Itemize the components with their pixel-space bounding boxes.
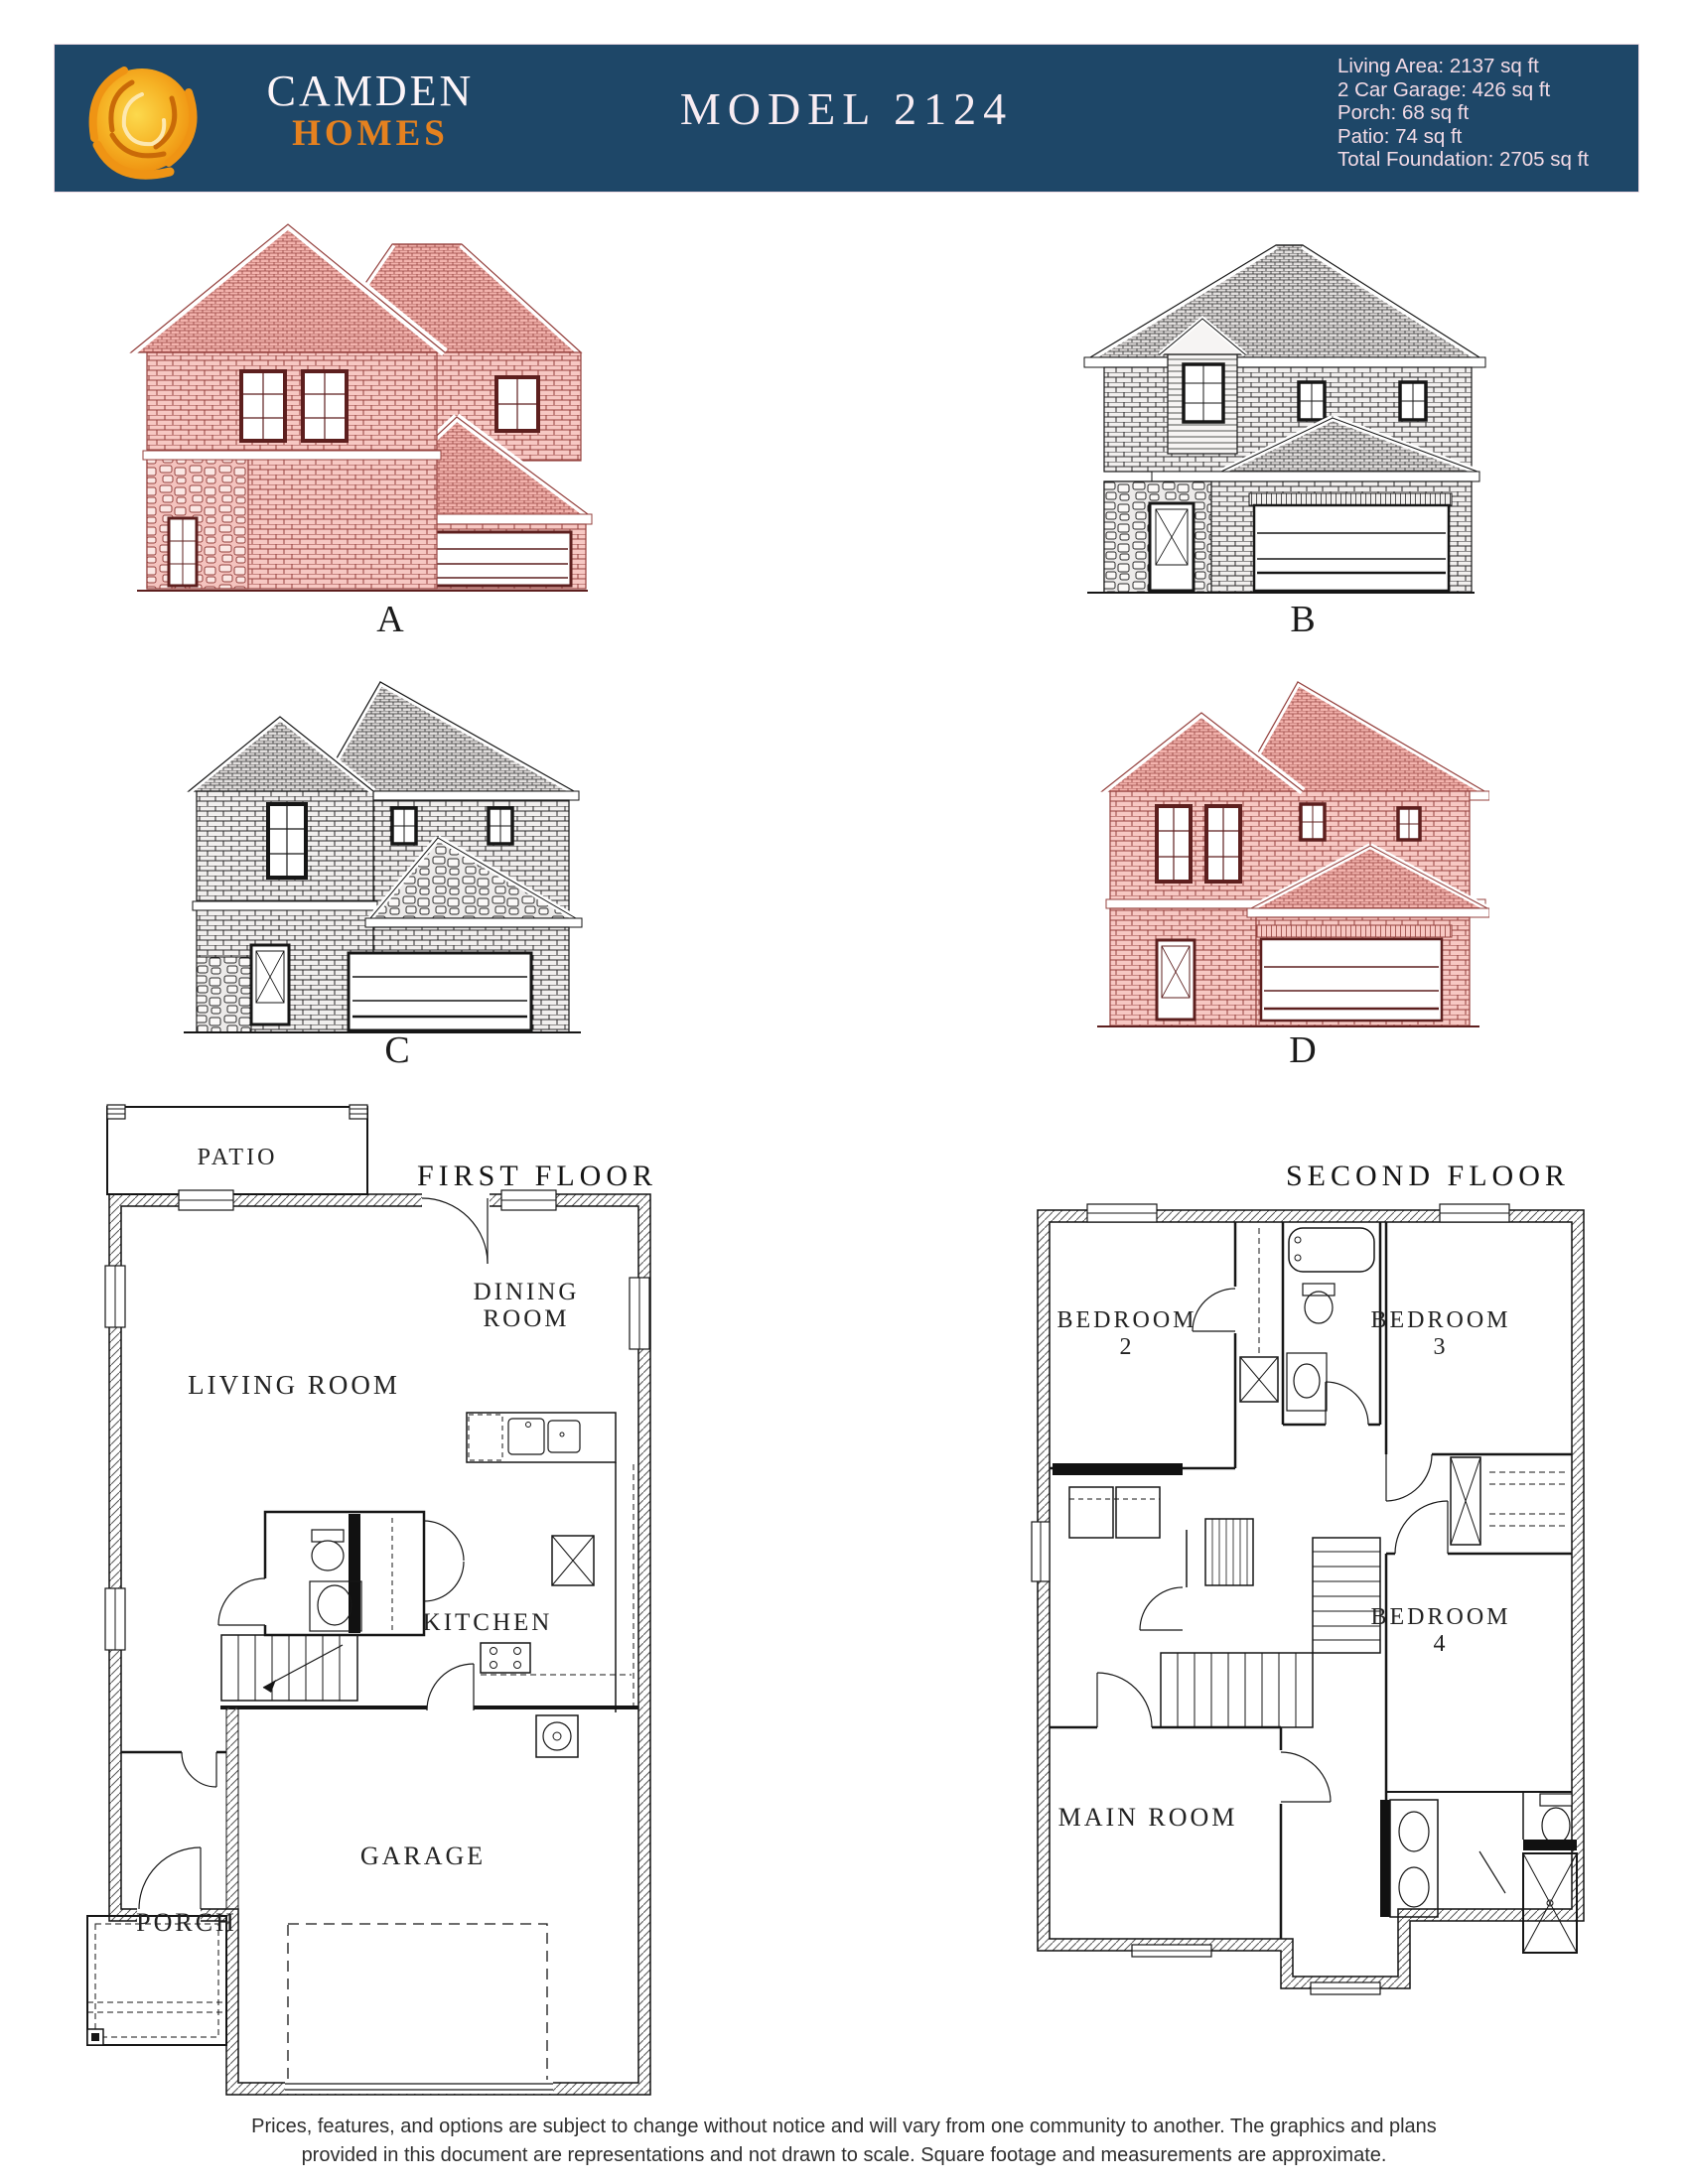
stairs <box>221 1635 357 1701</box>
elevation-c-drawing <box>164 657 601 1044</box>
interior-walls <box>121 1664 638 1909</box>
first-story <box>1104 481 1472 593</box>
toilet-icon <box>1542 1808 1570 1843</box>
washer-icon <box>1069 1487 1113 1538</box>
bedroom3-walls <box>1386 1222 1572 1501</box>
bathtub-icon <box>1289 1228 1374 1272</box>
first-floor-title: FIRST FLOOR <box>417 1160 645 1193</box>
double-vanity <box>1390 1800 1438 1917</box>
range-icon <box>481 1643 530 1673</box>
stat-garage: 2 Car Garage: 426 sq ft <box>1337 78 1675 102</box>
sink-icon <box>1399 1812 1429 1851</box>
garage-wall <box>1256 917 1470 1026</box>
hall-closet <box>1240 1222 1283 1425</box>
elevation-d-drawing <box>1072 657 1489 1044</box>
room-label-bedroom-4: BEDROOM 4 <box>1366 1604 1515 1658</box>
elevation-c-label: C <box>362 1028 432 1072</box>
laundry <box>1069 1487 1160 1538</box>
stat-total-foundation: Total Foundation: 2705 sq ft <box>1337 148 1675 172</box>
room-label-bedroom-2: BEDROOM 2 <box>1053 1307 1201 1361</box>
stat-living-area: Living Area: 2137 sq ft <box>1337 55 1675 78</box>
sink-icon <box>1294 1364 1320 1398</box>
entry-door <box>1157 940 1195 1020</box>
elevation-b-drawing <box>1072 223 1489 620</box>
sink-icon <box>1399 1867 1429 1907</box>
disclaimer: Prices, features, and options are subjec… <box>0 2113 1688 2170</box>
stats-list: Living Area: 2137 sq ft 2 Car Garage: 42… <box>1337 55 1675 172</box>
stairs <box>1161 1519 1380 1727</box>
room-label-patio: PATIO <box>163 1145 312 1171</box>
second-floor-title: SECOND FLOOR <box>1286 1160 1534 1193</box>
hall-doors <box>1140 1530 1187 1630</box>
toilet-icon <box>1305 1292 1333 1323</box>
master-bath <box>1278 1750 1577 1953</box>
garage-wall <box>349 927 569 1032</box>
first-floor-plan <box>79 1087 675 2100</box>
room-label-living-room: LIVING ROOM <box>170 1372 418 1399</box>
elevation-a-drawing <box>129 167 596 623</box>
disclaimer-line-1: Prices, features, and options are subjec… <box>0 2113 1688 2141</box>
garage-door <box>1254 505 1449 591</box>
model-sheet-page: CAMDEN HOMES MODEL 2124 Living Area: 213… <box>0 0 1688 2184</box>
room-label-garage: GARAGE <box>349 1843 497 1869</box>
entry-door <box>169 518 197 586</box>
toilet-icon <box>312 1541 344 1570</box>
dryer-icon <box>1116 1487 1160 1538</box>
stat-porch: Porch: 68 sq ft <box>1337 101 1675 125</box>
elevation-a-label: A <box>355 598 425 641</box>
water-heater-icon <box>543 1722 571 1750</box>
garage-elements <box>285 1715 578 2094</box>
room-label-kitchen: KITCHEN <box>413 1609 562 1636</box>
second-floor-plan <box>1013 1157 1599 2005</box>
elevation-b-label: B <box>1268 598 1337 641</box>
kitchen-fixtures <box>467 1413 633 1712</box>
entry-door <box>251 945 289 1024</box>
garage-door <box>349 953 531 1030</box>
room-label-dining-room: DINING ROOM <box>452 1279 601 1332</box>
main-hip-roof <box>1084 245 1485 367</box>
disclaimer-line-2: provided in this document are representa… <box>0 2141 1688 2170</box>
room-label-porch: PORCH <box>112 1909 261 1936</box>
sink-icon <box>318 1585 352 1625</box>
entry-door <box>1150 503 1194 591</box>
room-label-bedroom-3: BEDROOM 3 <box>1366 1307 1515 1361</box>
room-label-main-room: MAIN ROOM <box>1049 1804 1247 1831</box>
patio-door <box>422 1189 490 1264</box>
stat-patio: Patio: 74 sq ft <box>1337 125 1675 149</box>
elevation-d-label: D <box>1268 1028 1337 1072</box>
garage-door-dashed <box>288 1924 547 2082</box>
